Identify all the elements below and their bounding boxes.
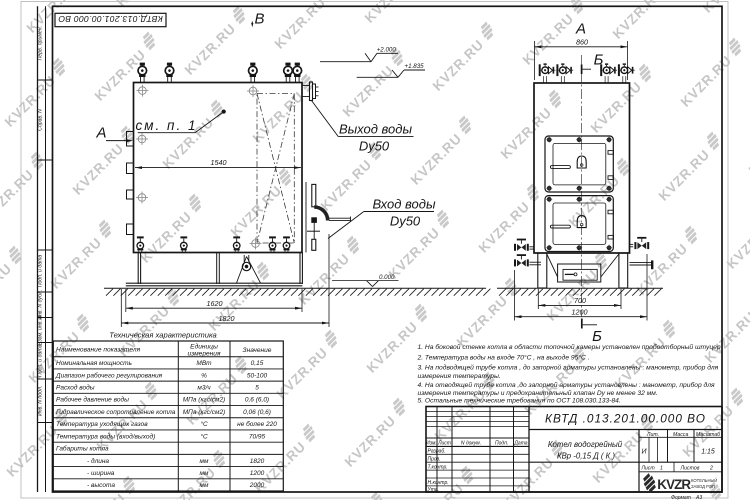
svg-text:%: % <box>201 372 207 379</box>
svg-text:Температура воды (вход/выход): Температура воды (вход/выход) <box>56 432 155 440</box>
svg-text:Масштаб: Масштаб <box>696 432 721 438</box>
svg-text:1. На боковой стенке котла в: 1. На боковой стенке котла в области топ… <box>418 343 721 351</box>
svg-text:м3/ч: м3/ч <box>197 385 211 392</box>
svg-text:5. Остальные технические треб: 5. Остальные технические требования по О… <box>418 396 621 404</box>
svg-text:Инв. N подл.: Инв. N подл. <box>38 386 44 416</box>
svg-text:- длина: - длина <box>87 457 109 465</box>
svg-text:+1.835: +1.835 <box>405 63 425 70</box>
svg-text:1620: 1620 <box>207 299 223 308</box>
svg-text:Температура уходящих газов: Температура уходящих газов <box>56 420 148 428</box>
svg-text:Котел водогрейный: Котел водогрейный <box>548 440 623 449</box>
svg-text:измерения: измерения <box>188 350 221 357</box>
svg-text:1820: 1820 <box>219 314 235 323</box>
svg-text:КВТД .013.201.00.000 ВО: КВТД .013.201.00.000 ВО <box>545 412 706 426</box>
svg-text:Б: Б <box>594 52 604 69</box>
svg-text:N докум.: N докум. <box>461 441 481 447</box>
svg-text:Н.контр.: Н.контр. <box>428 480 449 486</box>
svg-text:Изм.: Изм. <box>426 441 437 447</box>
svg-text:Диапазон рабочего регулировани: Диапазон рабочего регулирования <box>55 371 163 379</box>
svg-text:Утв.: Утв. <box>428 487 439 493</box>
svg-text:Рабочее давление воды: Рабочее давление воды <box>56 396 129 404</box>
svg-text:см. п. 1: см. п. 1 <box>136 118 198 133</box>
svg-text:Гидравлическое сопротивление к: Гидравлическое сопротивление котла <box>56 408 176 416</box>
svg-text:3. На подводящей трубе котла: 3. На подводящей трубе котла , до запорн… <box>418 363 719 371</box>
svg-text:0,6 (6,0): 0,6 (6,0) <box>245 397 269 404</box>
svg-text:Номинальная мощность: Номинальная мощность <box>56 360 133 367</box>
svg-text:ЗАВОД РЭП: ЗАВОД РЭП <box>691 484 715 489</box>
svg-text:МВт: МВт <box>196 360 212 367</box>
svg-text:Листов: Листов <box>680 466 700 472</box>
svg-text:Наименование показателя: Наименование показателя <box>56 347 141 354</box>
svg-text:не более 220: не более 220 <box>237 420 277 428</box>
svg-text:Лит.: Лит. <box>646 432 659 438</box>
svg-text:мм: мм <box>200 470 209 477</box>
svg-text:А: А <box>95 125 106 142</box>
svg-text:мм: мм <box>200 482 209 489</box>
svg-text:Масса: Масса <box>673 432 688 438</box>
svg-text:А3: А3 <box>695 495 702 500</box>
svg-text:Техническая характеристика: Техническая характеристика <box>109 331 217 340</box>
svg-text:Расход воды: Расход воды <box>56 384 95 392</box>
svg-text:50-100: 50-100 <box>247 372 268 379</box>
svg-text:КВр -0,15 Д ( К ): КВр -0,15 Д ( К ) <box>557 451 615 460</box>
svg-text:Лист: Лист <box>437 441 451 447</box>
svg-text:Вход воды: Вход воды <box>372 196 436 211</box>
svg-text:0.000: 0.000 <box>379 274 395 281</box>
svg-text:Подп.: Подп. <box>495 441 508 447</box>
svg-text:Значение: Значение <box>243 347 272 354</box>
svg-text:1:15: 1:15 <box>701 449 715 456</box>
svg-text:2: 2 <box>709 466 713 472</box>
svg-text:мм: мм <box>200 458 209 465</box>
svg-text:860: 860 <box>576 37 588 46</box>
svg-text:Dy50: Dy50 <box>390 213 421 228</box>
svg-text:измерения температуры.: измерения температуры. <box>418 373 501 380</box>
svg-text:Подп. и дата: Подп. и дата <box>38 255 44 288</box>
svg-text:А: А <box>575 21 586 38</box>
svg-text:Формат: Формат <box>671 495 691 500</box>
svg-text:4. На отводящей трубе котла ,: 4. На отводящей трубе котла ,до запорной… <box>418 381 716 389</box>
svg-text:5: 5 <box>255 385 259 392</box>
svg-text:°С: °С <box>200 420 208 428</box>
svg-text:КВТД.013.201.00.000 ВО: КВТД.013.201.00.000 ВО <box>58 14 163 24</box>
svg-text:0,06 (0,6): 0,06 (0,6) <box>243 409 271 416</box>
svg-text:Подп. и дата: Подп. и дата <box>38 344 44 377</box>
svg-text:Выход воды: Выход воды <box>339 122 413 137</box>
svg-text:Лист: Лист <box>640 466 655 472</box>
svg-text:Дата: Дата <box>513 441 527 447</box>
svg-text:1: 1 <box>660 466 663 472</box>
svg-text:КОТЕЛЬНЫЙ: КОТЕЛЬНЫЙ <box>691 478 717 483</box>
svg-text:В: В <box>254 11 264 28</box>
svg-text:Справ. N: Справ. N <box>38 109 44 131</box>
svg-text:- ширина: - ширина <box>87 470 115 477</box>
svg-text:Единицы: Единицы <box>190 342 218 350</box>
svg-text:1540: 1540 <box>211 158 227 167</box>
svg-text:+2.000: +2.000 <box>377 47 397 54</box>
svg-text:°С: °С <box>200 432 208 440</box>
svg-text:МПа (кгс/см2): МПа (кгс/см2) <box>183 397 225 404</box>
svg-text:KVZR: KVZR <box>657 477 691 492</box>
svg-text:1200: 1200 <box>572 308 588 317</box>
svg-text:МПа (кгс/см2): МПа (кгс/см2) <box>183 409 225 416</box>
svg-text:Dy50: Dy50 <box>359 139 390 154</box>
svg-text:Разраб.: Разраб. <box>428 449 446 455</box>
svg-text:Пров.: Пров. <box>428 457 441 463</box>
svg-text:измерения температуры и предох: измерения температуры и предохранительны… <box>418 389 658 397</box>
svg-text:Перв. примен.: Перв. примен. <box>38 26 44 60</box>
svg-text:2000: 2000 <box>249 482 265 489</box>
svg-text:Габариты котла: Габариты котла <box>56 445 109 453</box>
svg-text:Т.контр.: Т.контр. <box>428 464 448 470</box>
svg-text:Б: Б <box>592 328 602 345</box>
svg-text:- высота: - высота <box>87 482 115 489</box>
svg-text:0,15: 0,15 <box>251 360 264 367</box>
svg-text:70/95: 70/95 <box>249 433 266 440</box>
svg-text:1200: 1200 <box>250 470 265 477</box>
svg-text:Взам. инв. N: Взам. инв. N <box>38 315 44 345</box>
svg-text:1820: 1820 <box>250 458 265 465</box>
svg-text:2. Температура воды на входе: 2. Температура воды на входе 70°С , на в… <box>417 353 590 361</box>
svg-text:700: 700 <box>574 296 586 305</box>
